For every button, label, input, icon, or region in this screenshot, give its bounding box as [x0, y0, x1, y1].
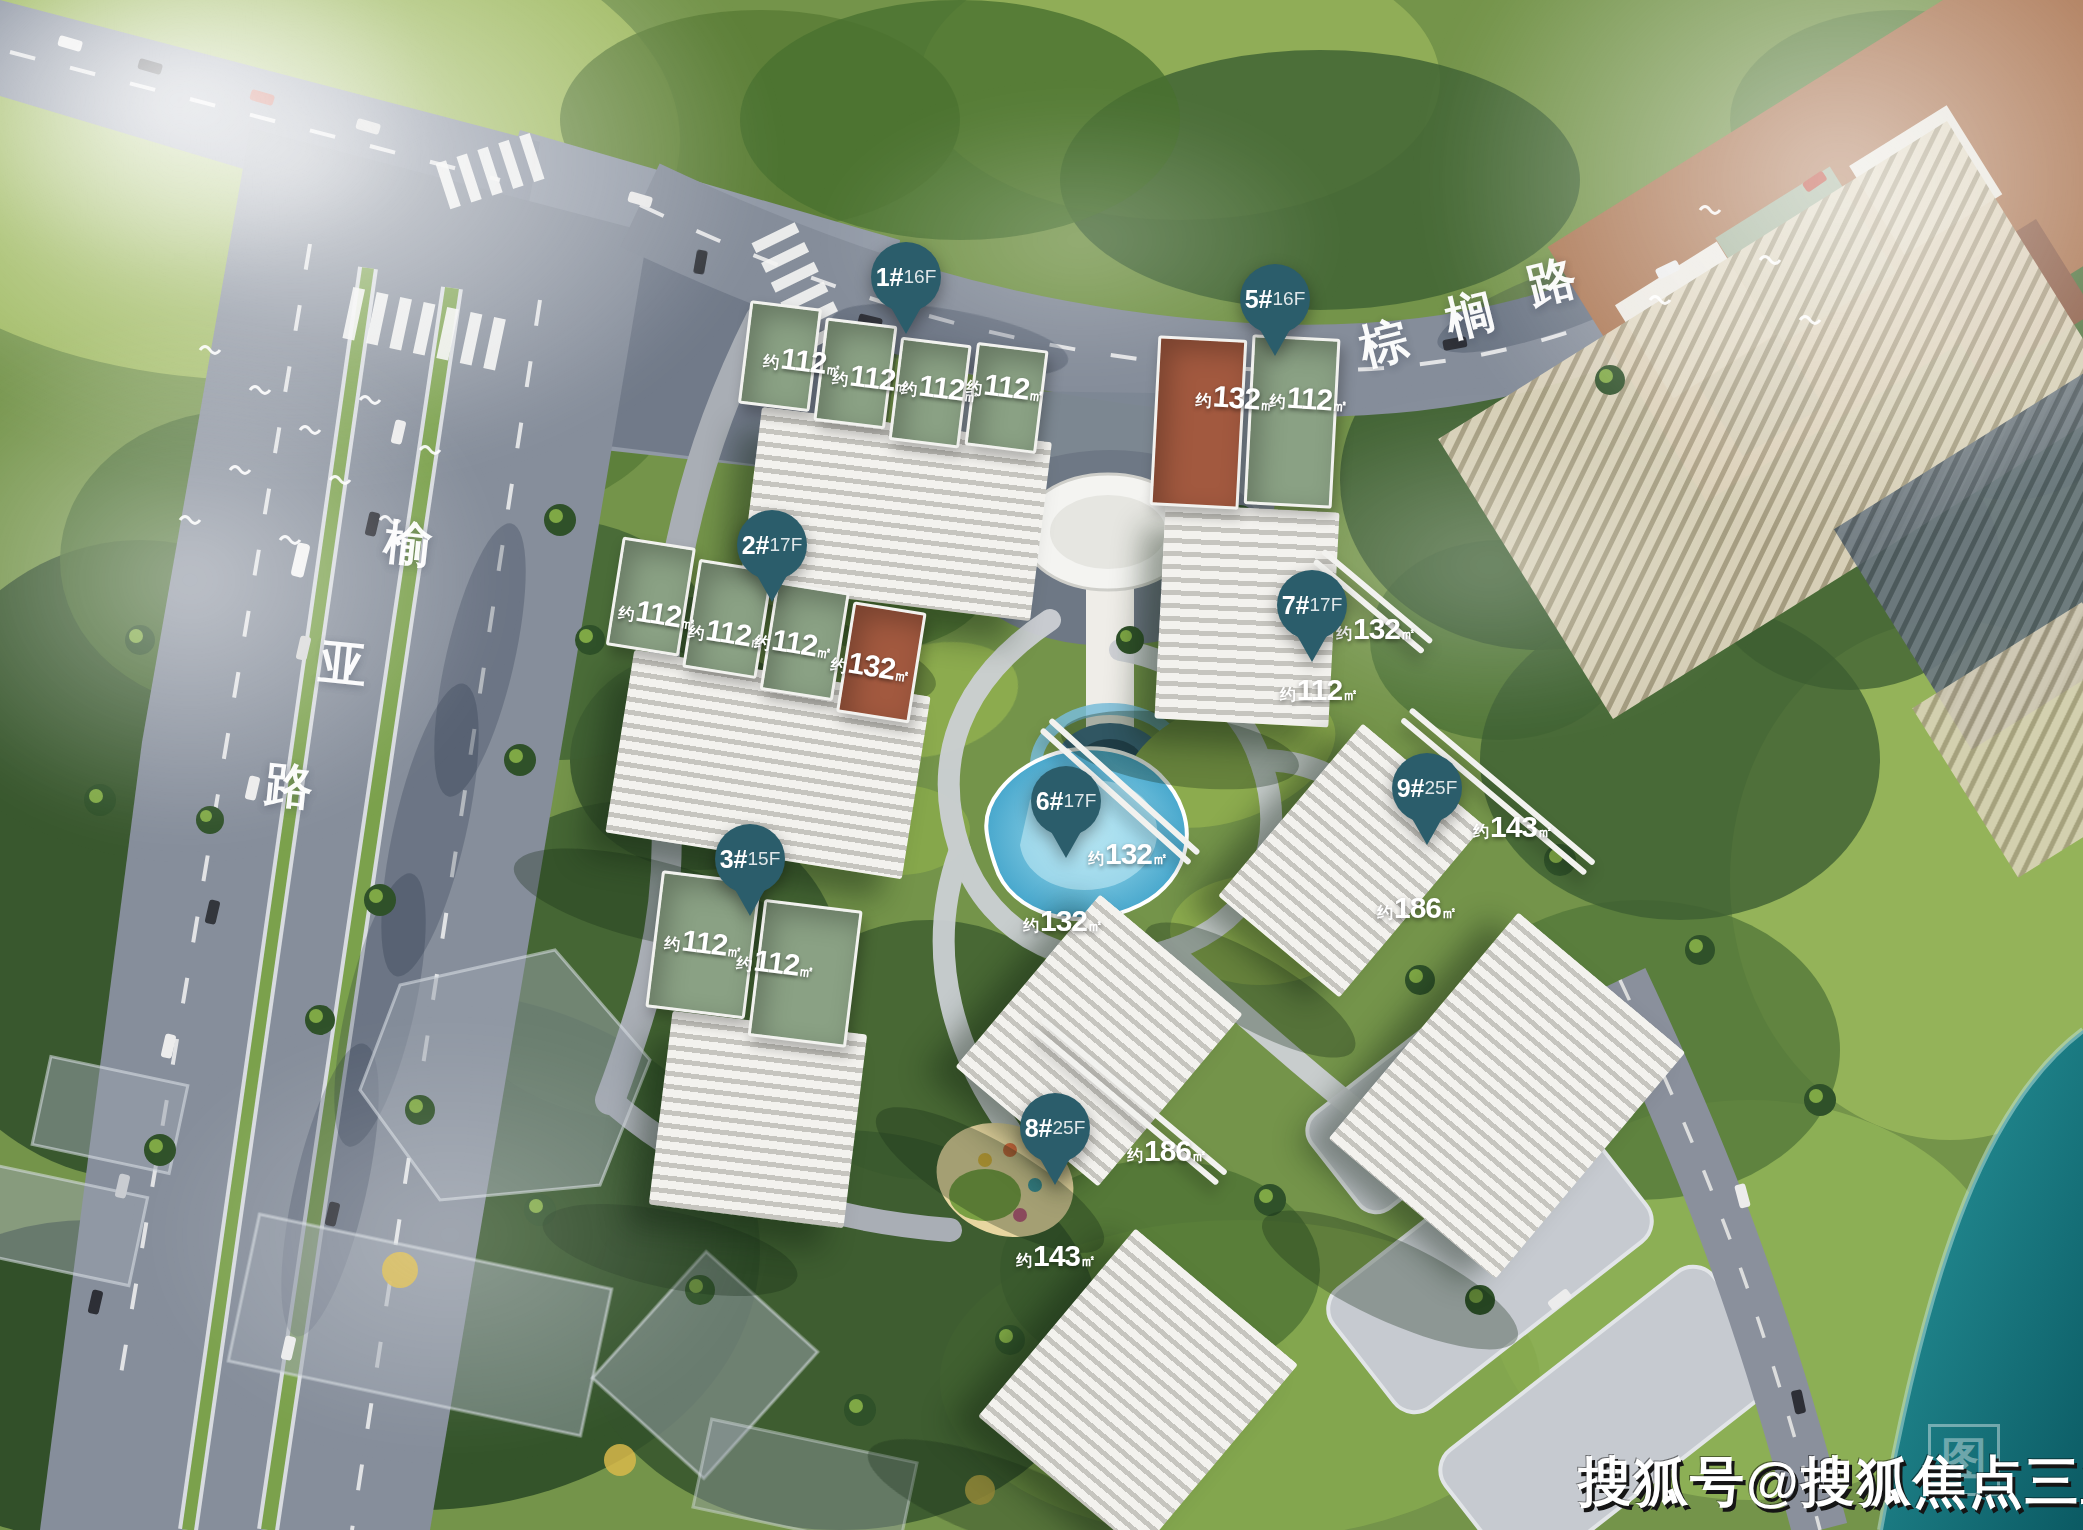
area-approx: 约 — [753, 633, 771, 652]
area-value: 132 — [1212, 379, 1261, 415]
pin-head: 1#16F — [871, 242, 941, 312]
area-value: 112 — [634, 594, 684, 634]
watermark-text: 搜狐号@搜狐焦点三亚站 — [1578, 1446, 2083, 1519]
area-approx: 约 — [832, 369, 850, 388]
pin-floors: 25F — [1053, 1117, 1086, 1139]
pin-floors: 17F — [770, 534, 803, 556]
pin-tail — [755, 572, 789, 602]
area-approx: 约 — [966, 378, 984, 397]
pin-building-9[interactable]: 9#25F — [1392, 753, 1462, 845]
pin-head: 3#15F — [715, 824, 785, 894]
area-label: 约132㎡ — [1336, 612, 1416, 646]
road-name-yuya-char: 榆 — [381, 510, 435, 579]
pin-head: 9#25F — [1392, 753, 1462, 823]
pin-number: 1# — [876, 263, 904, 292]
pin-number: 2# — [742, 531, 770, 560]
area-value: 112 — [1286, 380, 1334, 416]
pin-tail — [1038, 1155, 1072, 1185]
area-label: 约186㎡ — [1127, 1134, 1207, 1168]
pin-tail — [1295, 632, 1329, 662]
pin-head: 2#17F — [737, 510, 807, 580]
pin-number: 9# — [1397, 774, 1425, 803]
area-approx: 约 — [763, 352, 781, 371]
area-approx: 约 — [901, 379, 919, 398]
area-label: 约132㎡ — [1195, 378, 1277, 418]
area-unit: ㎡ — [797, 962, 815, 981]
pin-head: 5#16F — [1240, 264, 1310, 334]
area-unit: ㎡ — [1537, 823, 1553, 840]
pin-building-7[interactable]: 7#17F — [1277, 570, 1347, 662]
area-label: 约143㎡ — [1016, 1239, 1096, 1273]
tower-5-roof — [1150, 329, 1341, 514]
road-name-yuya-char: 路 — [262, 752, 316, 821]
pin-number: 6# — [1036, 787, 1064, 816]
pin-floors: 16F — [904, 266, 937, 288]
area-value: 132 — [1105, 837, 1152, 870]
area-approx: 约 — [1269, 392, 1286, 410]
pin-tail — [889, 304, 923, 334]
area-value: 132 — [1353, 612, 1400, 645]
area-approx: 约 — [1016, 1252, 1032, 1269]
area-approx: 约 — [1280, 686, 1296, 703]
area-value: 112 — [1297, 673, 1342, 706]
area-value: 112 — [704, 613, 754, 653]
area-label: 约186㎡ — [1377, 891, 1457, 925]
roof-unit — [1150, 335, 1247, 509]
area-unit: ㎡ — [1080, 1252, 1096, 1269]
area-approx: 约 — [617, 604, 635, 623]
pin-number: 7# — [1282, 591, 1310, 620]
area-label: 约112㎡ — [1280, 673, 1358, 707]
pin-head: 7#17F — [1277, 570, 1347, 640]
pin-building-8[interactable]: 8#25F — [1020, 1093, 1090, 1185]
road-name-yuya-char: 亚 — [316, 630, 370, 699]
pin-floors: 17F — [1064, 790, 1097, 812]
pin-building-3[interactable]: 3#15F — [715, 824, 785, 916]
area-approx: 约 — [1195, 391, 1212, 409]
area-value: 132 — [1040, 904, 1087, 937]
area-value: 143 — [1490, 810, 1537, 843]
pin-building-6[interactable]: 6#17F — [1031, 766, 1101, 858]
area-value: 112 — [848, 358, 897, 396]
pin-number: 3# — [720, 845, 748, 874]
area-approx: 约 — [1473, 823, 1489, 840]
pin-floors: 25F — [1425, 777, 1458, 799]
area-label: 约112㎡ — [1269, 379, 1350, 418]
pin-building-5[interactable]: 5#16F — [1240, 264, 1310, 356]
aerial-masterplan: 约112㎡ 约112㎡ 约112㎡ 约112㎡ 约112㎡ 约112㎡ 约112… — [0, 0, 2083, 1530]
area-unit: ㎡ — [893, 666, 911, 685]
pin-tail — [733, 886, 767, 916]
pin-number: 5# — [1245, 285, 1273, 314]
area-value: 132 — [846, 646, 898, 686]
pin-tail — [1410, 815, 1444, 845]
area-label: 约132㎡ — [1023, 904, 1103, 938]
area-approx: 约 — [1377, 904, 1393, 921]
area-value: 112 — [917, 368, 966, 406]
pin-head: 6#17F — [1031, 766, 1101, 836]
pin-building-2[interactable]: 2#17F — [737, 510, 807, 602]
area-unit: ㎡ — [1342, 686, 1358, 703]
area-value: 112 — [779, 341, 828, 379]
area-value: 112 — [680, 923, 729, 961]
pin-number: 8# — [1025, 1114, 1053, 1143]
pin-tail — [1258, 326, 1292, 356]
area-approx: 约 — [829, 656, 847, 675]
pin-tail — [1049, 828, 1083, 858]
area-label: 约143㎡ — [1473, 810, 1553, 844]
area-approx: 约 — [1127, 1147, 1143, 1164]
area-unit: ㎡ — [1331, 397, 1348, 415]
area-unit: ㎡ — [1441, 904, 1457, 921]
area-value: 186 — [1394, 891, 1441, 924]
area-value: 112 — [752, 943, 801, 981]
area-approx: 约 — [1023, 917, 1039, 934]
area-value: 143 — [1033, 1239, 1080, 1272]
area-unit: ㎡ — [1027, 386, 1045, 405]
area-unit: ㎡ — [1191, 1147, 1207, 1164]
pin-floors: 17F — [1310, 594, 1343, 616]
area-value: 186 — [1144, 1134, 1191, 1167]
roof-unit — [1243, 334, 1340, 508]
pin-floors: 16F — [1273, 288, 1306, 310]
pin-floors: 15F — [748, 848, 781, 870]
area-unit: ㎡ — [1087, 917, 1103, 934]
area-value: 112 — [770, 623, 820, 663]
area-unit: ㎡ — [1152, 850, 1168, 867]
area-approx: 约 — [736, 954, 754, 973]
area-approx: 约 — [687, 623, 705, 642]
pin-head: 8#25F — [1020, 1093, 1090, 1163]
area-unit: ㎡ — [1400, 625, 1416, 642]
pin-building-1[interactable]: 1#16F — [871, 242, 941, 334]
area-approx: 约 — [664, 934, 682, 953]
area-value: 112 — [982, 367, 1031, 405]
